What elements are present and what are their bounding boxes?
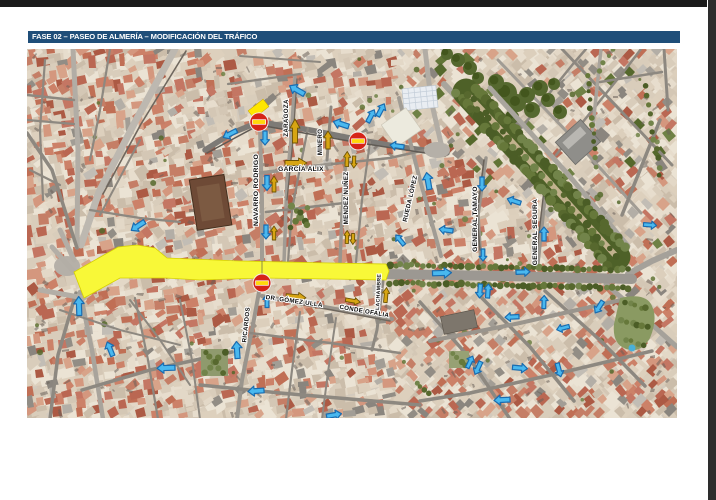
svg-text:MINERO: MINERO bbox=[317, 129, 324, 156]
svg-text:MENDEZ NUÑEZ: MENDEZ NUÑEZ bbox=[343, 172, 350, 225]
svg-text:NAVARRO RODRIGO: NAVARRO RODRIGO bbox=[253, 154, 260, 226]
svg-text:ZARAGOZA: ZARAGOZA bbox=[283, 99, 290, 137]
svg-text:GENERAL SEGURA: GENERAL SEGURA bbox=[532, 199, 539, 265]
svg-text:GENERAL TAMAYO: GENERAL TAMAYO bbox=[472, 186, 479, 252]
svg-text:GARCÍA ALIX: GARCÍA ALIX bbox=[278, 164, 324, 173]
